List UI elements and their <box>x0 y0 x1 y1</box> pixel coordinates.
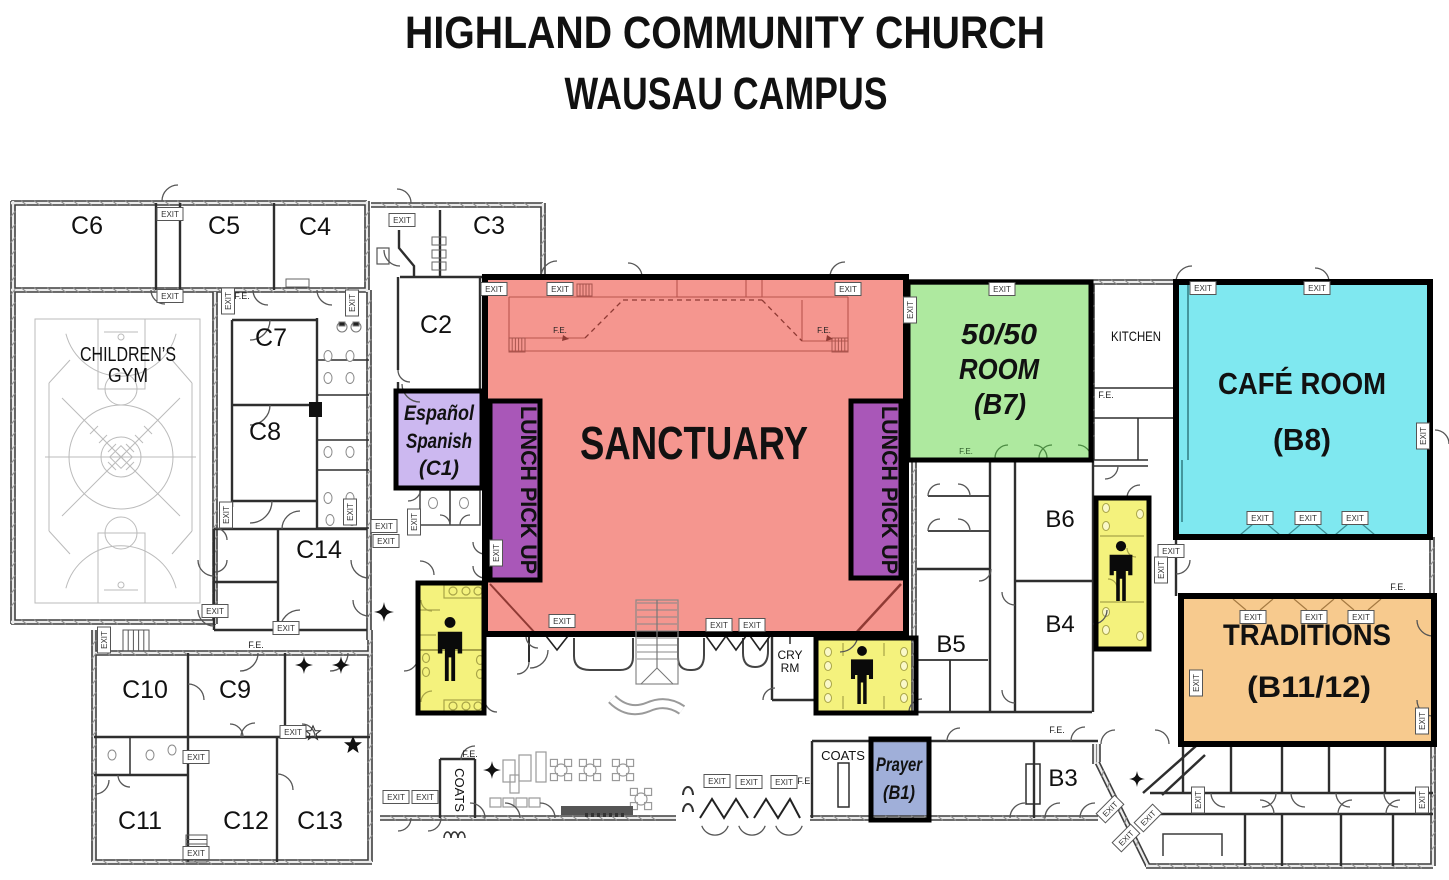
svg-text:C2: C2 <box>420 311 452 339</box>
svg-text:EXIT: EXIT <box>377 537 395 546</box>
svg-text:SANCTUARY: SANCTUARY <box>580 417 808 469</box>
svg-text:EXIT: EXIT <box>839 285 857 294</box>
svg-text:EXIT: EXIT <box>492 544 501 562</box>
svg-text:EXIT: EXIT <box>277 624 295 633</box>
svg-text:EXIT: EXIT <box>375 522 393 531</box>
svg-text:EXIT: EXIT <box>551 285 569 294</box>
svg-text:EXIT: EXIT <box>1192 674 1201 692</box>
svg-text:EXIT: EXIT <box>993 285 1011 294</box>
svg-text:ROOM: ROOM <box>959 354 1040 386</box>
svg-text:Spanish: Spanish <box>406 430 472 453</box>
svg-text:F.E.: F.E. <box>553 326 567 335</box>
svg-text:EXIT: EXIT <box>416 793 434 802</box>
svg-text:C7: C7 <box>255 324 287 352</box>
svg-text:WAUSAU CAMPUS: WAUSAU CAMPUS <box>565 68 888 119</box>
svg-text:F.E.: F.E. <box>248 640 264 650</box>
svg-text:EXIT: EXIT <box>906 301 915 319</box>
svg-text:F.E.: F.E. <box>817 326 831 335</box>
svg-text:EXIT: EXIT <box>161 292 179 301</box>
svg-text:F.E.: F.E. <box>1098 390 1114 400</box>
svg-text:EXIT: EXIT <box>1305 613 1323 622</box>
svg-text:EXIT: EXIT <box>1346 514 1364 523</box>
svg-text:EXIT: EXIT <box>1308 284 1326 293</box>
svg-text:EXIT: EXIT <box>393 216 411 225</box>
svg-text:EXIT: EXIT <box>1418 791 1427 809</box>
svg-text:EXIT: EXIT <box>224 292 233 310</box>
svg-text:EXIT: EXIT <box>485 285 503 294</box>
svg-text:EXIT: EXIT <box>348 294 357 312</box>
svg-text:EXIT: EXIT <box>1244 613 1262 622</box>
svg-text:EXIT: EXIT <box>187 753 205 762</box>
svg-text:GYM: GYM <box>108 365 148 387</box>
svg-text:EXIT: EXIT <box>161 210 179 219</box>
svg-text:EXIT: EXIT <box>710 621 728 630</box>
svg-text:CHILDREN’S: CHILDREN’S <box>80 344 176 366</box>
svg-text:B6: B6 <box>1045 506 1074 533</box>
svg-text:EXIT: EXIT <box>284 728 302 737</box>
svg-text:COATS: COATS <box>821 748 865 763</box>
svg-text:C5: C5 <box>208 212 240 240</box>
svg-text:C12: C12 <box>223 807 269 835</box>
svg-text:EXIT: EXIT <box>206 607 224 616</box>
svg-text:F.E.: F.E. <box>797 776 813 786</box>
svg-text:EXIT: EXIT <box>1419 427 1428 445</box>
svg-text:EXIT: EXIT <box>410 513 419 531</box>
svg-text:EXIT: EXIT <box>1194 284 1212 293</box>
svg-text:KITCHEN: KITCHEN <box>1111 328 1161 344</box>
svg-text:EXIT: EXIT <box>1194 791 1203 809</box>
svg-text:F.E.: F.E. <box>1390 582 1406 592</box>
svg-text:Español: Español <box>404 402 475 425</box>
svg-text:C6: C6 <box>71 212 103 240</box>
svg-text:LUNCH PICK UP: LUNCH PICK UP <box>877 406 902 574</box>
svg-text:CRY: CRY <box>777 648 802 662</box>
svg-text:F.E.: F.E. <box>234 291 250 301</box>
svg-text:EXIT: EXIT <box>1352 613 1370 622</box>
svg-text:F.E.: F.E. <box>959 447 973 456</box>
svg-text:COATS: COATS <box>452 768 467 812</box>
svg-text:EXIT: EXIT <box>743 621 761 630</box>
svg-text:EXIT: EXIT <box>387 793 405 802</box>
svg-text:EXIT: EXIT <box>100 631 109 649</box>
svg-text:EXIT: EXIT <box>553 617 571 626</box>
svg-text:C14: C14 <box>296 536 342 564</box>
svg-text:EXIT: EXIT <box>1418 712 1427 730</box>
svg-text:B3: B3 <box>1048 765 1077 792</box>
svg-text:C11: C11 <box>118 807 162 835</box>
svg-text:(B1): (B1) <box>883 783 915 804</box>
svg-text:EXIT: EXIT <box>775 778 793 787</box>
svg-text:(C1): (C1) <box>419 457 459 480</box>
svg-text:C9: C9 <box>219 676 251 704</box>
svg-text:(B7): (B7) <box>974 389 1026 421</box>
svg-text:EXIT: EXIT <box>740 778 758 787</box>
svg-text:C13: C13 <box>297 807 343 835</box>
svg-text:(B11/12): (B11/12) <box>1247 671 1371 704</box>
svg-text:EXIT: EXIT <box>1157 561 1166 579</box>
svg-text:HIGHLAND COMMUNITY CHURCH: HIGHLAND COMMUNITY CHURCH <box>405 7 1045 58</box>
svg-text:EXIT: EXIT <box>187 849 205 858</box>
svg-text:RM: RM <box>781 661 800 675</box>
svg-text:EXIT: EXIT <box>708 777 726 786</box>
svg-text:C10: C10 <box>122 676 168 704</box>
svg-text:C8: C8 <box>249 418 281 446</box>
svg-text:B4: B4 <box>1045 611 1074 638</box>
svg-text:C3: C3 <box>473 212 505 240</box>
svg-text:B5: B5 <box>936 631 965 658</box>
svg-text:EXIT: EXIT <box>1299 514 1317 523</box>
svg-text:EXIT: EXIT <box>222 506 231 524</box>
svg-text:(B8): (B8) <box>1273 422 1331 457</box>
svg-text:CAFÉ ROOM: CAFÉ ROOM <box>1218 366 1386 401</box>
svg-text:F.E.: F.E. <box>462 749 478 759</box>
svg-text:50/50: 50/50 <box>961 319 1037 351</box>
svg-text:F.E.: F.E. <box>1049 725 1065 735</box>
svg-text:Prayer: Prayer <box>876 755 923 776</box>
svg-text:C4: C4 <box>299 213 331 241</box>
svg-text:LUNCH PICK UP: LUNCH PICK UP <box>516 406 541 574</box>
svg-text:EXIT: EXIT <box>1162 547 1180 556</box>
svg-text:EXIT: EXIT <box>346 503 355 521</box>
svg-text:EXIT: EXIT <box>1251 514 1269 523</box>
